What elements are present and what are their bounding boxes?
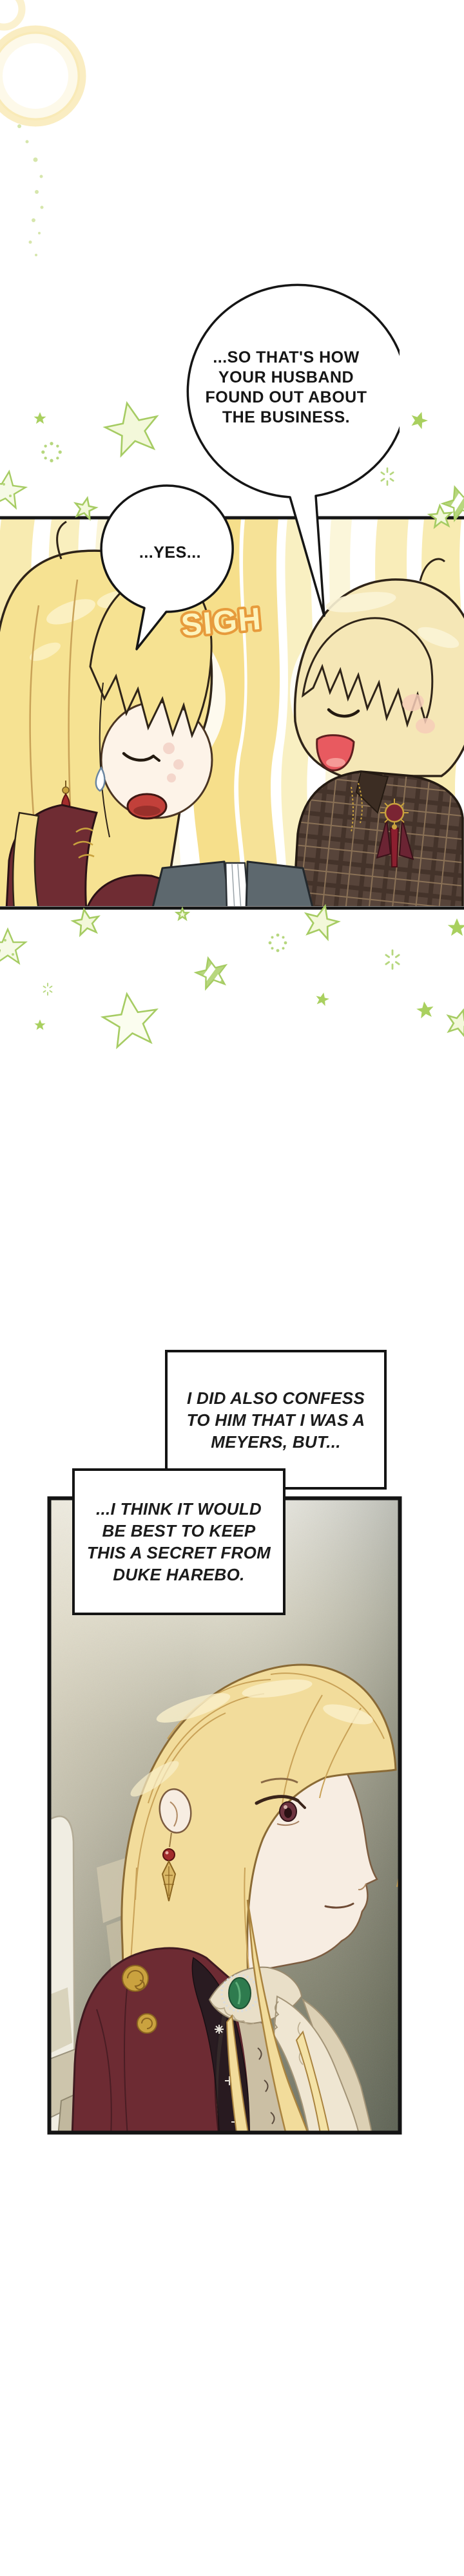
sigh-sfx: SIGH [157,592,286,654]
sigh-sfx-text: SIGH [180,602,264,643]
narration-line: BE BEST TO KEEP [75,1520,283,1542]
bubble-line: YOUR HUSBAND [195,368,378,388]
narration-line: THIS A SECRET FROM [75,1542,283,1564]
narration-line: DUKE HAREBO. [75,1564,283,1586]
narration-box-secret: ...I THINK IT WOULD BE BEST TO KEEP THIS… [72,1468,285,1615]
webtoon-page: ...SO THAT'S HOW YOUR HUSBAND FOUND OUT … [0,0,464,2576]
yes-bubble-text: ...YES... [106,543,235,563]
yellow-glow-rings [0,0,82,122]
green-stars-bottom [0,902,464,1048]
open-book [152,862,313,910]
bubble-line: ...SO THAT'S HOW [195,348,378,368]
narration-line: ...I THINK IT WOULD [75,1498,283,1520]
narration-line: MEYERS, BUT... [168,1431,384,1453]
bubble-line: THE BUSINESS. [195,408,378,428]
narration-line: TO HIM THAT I WAS A [168,1409,384,1431]
green-dot-trail [17,124,44,256]
narration-line: I DID ALSO CONFESS [168,1387,384,1409]
husband-bubble-text: ...SO THAT'S HOW YOUR HUSBAND FOUND OUT … [195,348,378,428]
bubble-line: FOUND OUT ABOUT [195,388,378,408]
